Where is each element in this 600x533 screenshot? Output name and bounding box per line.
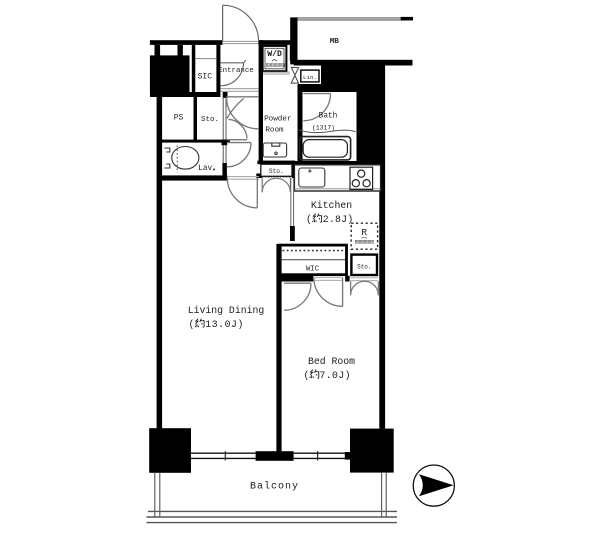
svg-text:Living Dining: Living Dining	[188, 305, 265, 316]
svg-text:(: (	[306, 214, 312, 225]
svg-text:2.8J): 2.8J)	[323, 214, 354, 225]
svg-text:W/D: W/D	[267, 49, 282, 59]
svg-text:7.0J): 7.0J)	[320, 370, 351, 381]
svg-text:Balcony: Balcony	[250, 481, 299, 493]
svg-text:MB: MB	[330, 38, 340, 46]
svg-text:R: R	[361, 227, 367, 238]
svg-text:Sto.: Sto.	[269, 168, 284, 175]
svg-text:Kitchen: Kitchen	[311, 200, 352, 211]
svg-text:Entrance: Entrance	[218, 67, 253, 75]
svg-text:WIC: WIC	[306, 266, 320, 274]
svg-text:(1317): (1317)	[312, 125, 335, 132]
svg-text:Bath: Bath	[319, 113, 338, 121]
svg-text:Room: Room	[265, 126, 284, 134]
svg-text:Lin.: Lin.	[303, 74, 317, 81]
svg-text:(: (	[189, 319, 195, 330]
svg-text:Powder: Powder	[264, 115, 291, 123]
svg-text:13.0J): 13.0J)	[205, 319, 244, 330]
svg-text:Bed Room: Bed Room	[308, 356, 355, 367]
svg-text:Sto.: Sto.	[201, 116, 219, 124]
svg-text:(: (	[304, 370, 310, 381]
svg-text:PS: PS	[174, 114, 184, 123]
svg-text:SIC: SIC	[198, 73, 213, 82]
svg-text:Sto.: Sto.	[357, 263, 371, 270]
